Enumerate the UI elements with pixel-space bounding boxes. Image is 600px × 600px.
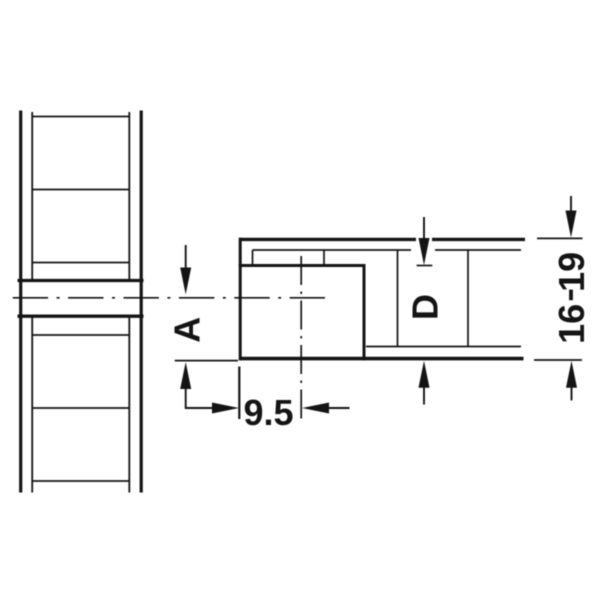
- svg-text:9.5: 9.5: [243, 392, 293, 433]
- svg-text:D: D: [405, 294, 446, 320]
- svg-text:19: 19: [551, 252, 592, 292]
- svg-text:A: A: [167, 317, 208, 343]
- svg-text:16: 16: [551, 304, 592, 344]
